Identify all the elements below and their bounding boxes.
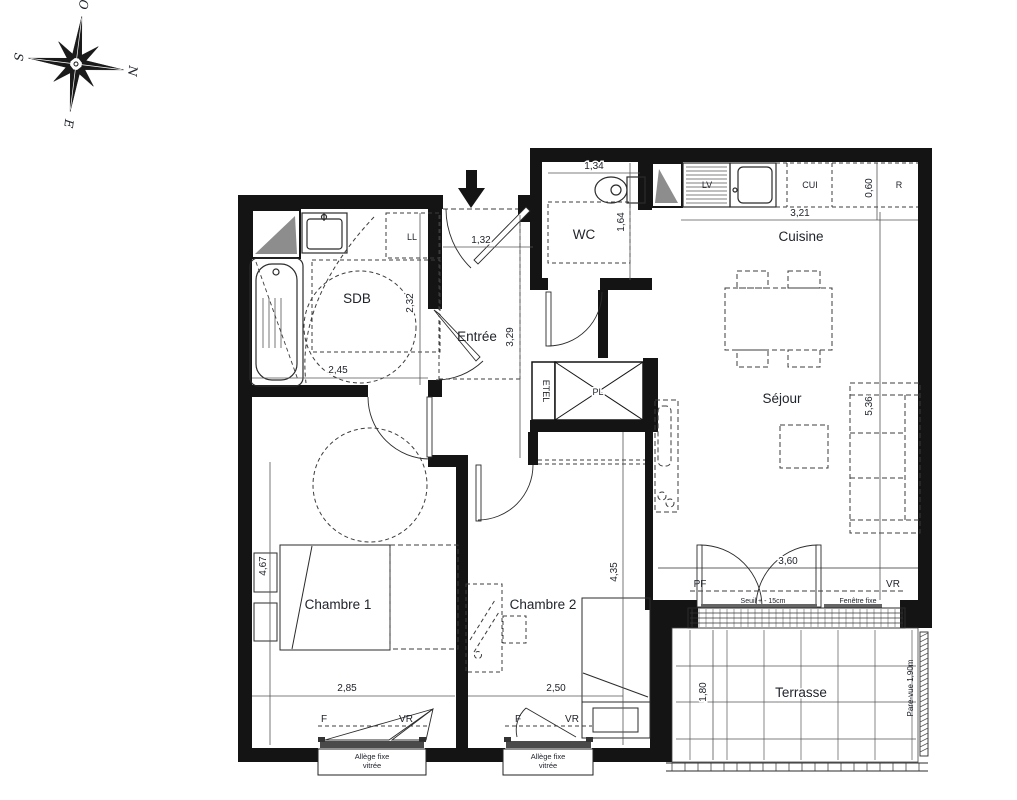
seuil-note: Seuil + - 15cm bbox=[741, 598, 786, 605]
room-label-wc: WC bbox=[573, 227, 596, 242]
dim-wc-height: 1,64 bbox=[616, 212, 627, 232]
dim-terrasse-depth: 1,80 bbox=[698, 682, 709, 702]
window-f-label: F bbox=[321, 714, 327, 725]
chair bbox=[737, 350, 768, 367]
room-label-chambre2: Chambre 2 bbox=[510, 597, 577, 612]
closet-label-etel: ETEL bbox=[541, 380, 551, 403]
dim-entree-height: 3,29 bbox=[505, 327, 516, 347]
appliance-label-cui: CUI bbox=[802, 180, 818, 190]
floor-plan: N E S O bbox=[0, 0, 1017, 800]
room-label-terrasse: Terrasse bbox=[775, 685, 827, 700]
window-vr-label: VR bbox=[565, 714, 579, 725]
fixed-window-note: Fenêtre fixe bbox=[840, 598, 877, 605]
chambre2-door-arc bbox=[478, 465, 533, 520]
room-label-entree: Entrée bbox=[457, 329, 497, 344]
chambre1-furniture bbox=[254, 428, 458, 650]
dim-chambre2-width: 2,50 bbox=[546, 683, 566, 694]
bay-door-left-leaf bbox=[697, 545, 702, 607]
wardrobe-zone bbox=[390, 545, 458, 649]
dimension-lines bbox=[252, 163, 918, 760]
bay-pf-label: PF bbox=[694, 579, 707, 590]
dim-counter-depth: 0,60 bbox=[864, 178, 875, 198]
compass-south-label: S bbox=[11, 52, 26, 62]
chair bbox=[737, 271, 768, 288]
bed-2 bbox=[582, 598, 650, 738]
allege-note-line2: vitrée bbox=[363, 761, 381, 770]
wc-door-leaf bbox=[546, 292, 551, 346]
closet-label-pl: PL bbox=[592, 387, 603, 397]
turning-circle bbox=[313, 428, 427, 542]
dim-bay-width: 3,60 bbox=[778, 556, 798, 567]
side-table bbox=[503, 616, 526, 643]
pare-vue-label: Pare-vue 1,90m bbox=[906, 659, 915, 716]
bathtub bbox=[250, 258, 303, 386]
chambre2-window: Allège fixe vitrée F VR bbox=[503, 708, 593, 775]
window-f-label: F bbox=[515, 714, 521, 725]
coffee-table bbox=[780, 425, 828, 468]
entrance-arrow-icon bbox=[458, 170, 485, 208]
entrance-door-arc bbox=[446, 209, 471, 268]
dim-sdb-height: 2,32 bbox=[405, 293, 416, 313]
dim-entree-width: 1,32 bbox=[471, 235, 491, 246]
sofa bbox=[850, 383, 920, 533]
room-labels: WC Cuisine SDB Entrée Séjour Chambre 1 C… bbox=[305, 180, 903, 700]
dim-chambre2-height: 4,35 bbox=[609, 562, 620, 582]
chambre2-door-leaf bbox=[476, 465, 481, 521]
chambre1-window: Allège fixe vitrée F VR bbox=[318, 709, 433, 775]
appliance-label-lv: LV bbox=[702, 180, 712, 190]
appliance-label-ll: LL bbox=[407, 232, 417, 242]
wc-door-arc bbox=[548, 292, 602, 346]
dining-table bbox=[725, 288, 832, 350]
compass-east-label: E bbox=[61, 117, 76, 129]
dim-sejour-height: 5,36 bbox=[864, 396, 875, 416]
wc-room bbox=[548, 177, 645, 263]
dim-chambre1-width: 2,85 bbox=[337, 683, 357, 694]
room-label-sejour: Séjour bbox=[762, 391, 802, 406]
room-label-cuisine: Cuisine bbox=[778, 229, 823, 244]
kitchen-counter bbox=[683, 163, 918, 207]
chair bbox=[788, 350, 820, 367]
chair bbox=[788, 271, 820, 288]
pillow bbox=[593, 708, 638, 732]
floor-plan-drawing: N E S O bbox=[0, 0, 1017, 800]
nightstand bbox=[254, 603, 277, 641]
dim-kitchen-width: 3,21 bbox=[790, 208, 810, 219]
bay-vr-label: VR bbox=[886, 579, 900, 590]
dim-chambre1-height: 4,67 bbox=[258, 556, 269, 576]
chambre1-door-leaf bbox=[427, 397, 432, 457]
pare-vue-screen bbox=[920, 632, 928, 756]
dim-sdb-width: 2,45 bbox=[328, 365, 348, 376]
sink-unit bbox=[730, 163, 776, 207]
compass-west-label: O bbox=[76, 0, 91, 10]
crib bbox=[466, 584, 502, 672]
bay-door-right-leaf bbox=[816, 545, 821, 607]
dim-wc-width: 1,34 bbox=[584, 161, 604, 172]
compass-rose: N E S O bbox=[4, 0, 148, 136]
allege-note-line2: vitrée bbox=[539, 761, 557, 770]
allege-note-line1: Allège fixe bbox=[531, 752, 566, 761]
window-vr-label: VR bbox=[399, 714, 413, 725]
room-label-chambre1: Chambre 1 bbox=[305, 597, 372, 612]
room-label-sdb: SDB bbox=[343, 291, 371, 306]
allege-note-line1: Allège fixe bbox=[355, 752, 390, 761]
compass-north-label: N bbox=[125, 64, 140, 78]
sdb-door-arc bbox=[436, 361, 483, 380]
appliance-label-r: R bbox=[896, 180, 903, 190]
